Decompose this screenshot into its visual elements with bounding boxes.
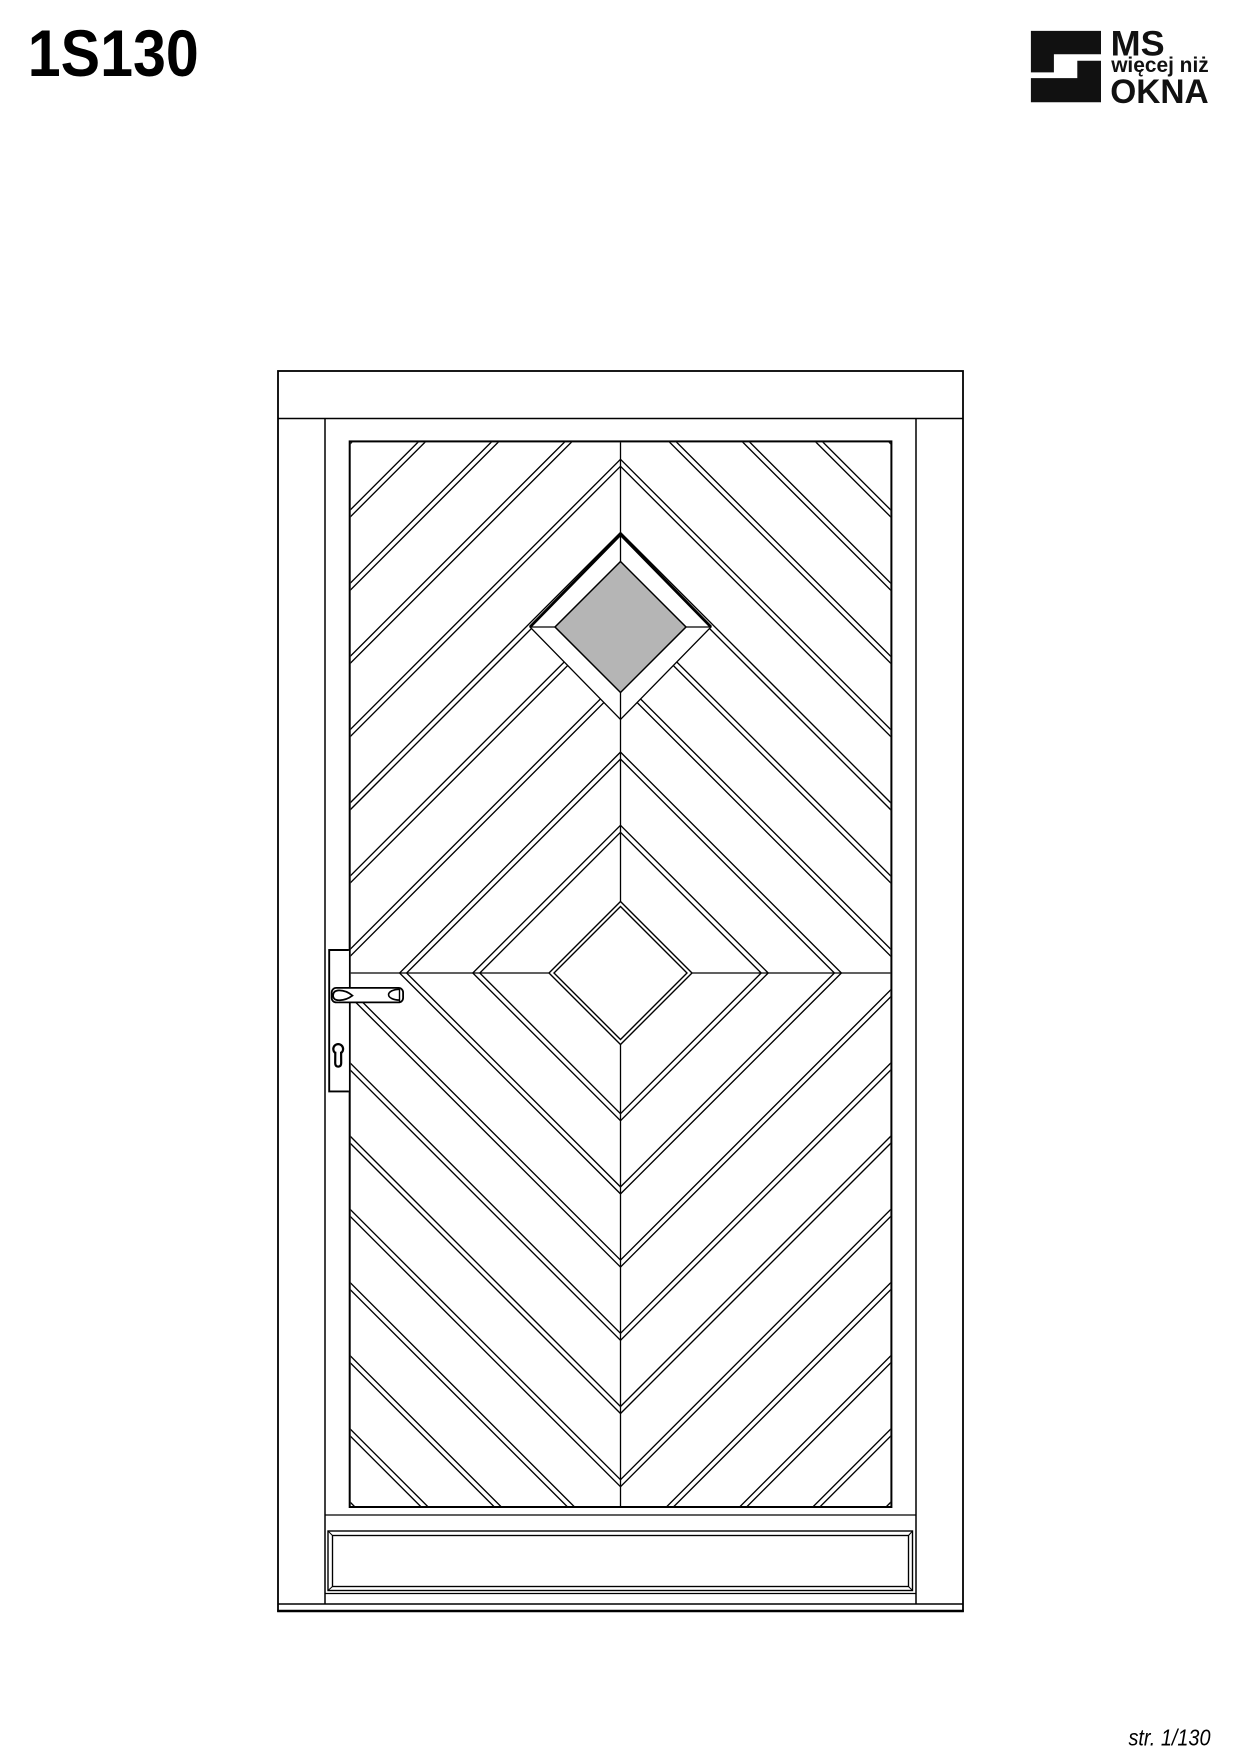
- svg-text:1S130: 1S130: [28, 17, 199, 90]
- svg-text:str. 1/130: str. 1/130: [1129, 1725, 1211, 1751]
- svg-text:OKNA: OKNA: [1110, 73, 1209, 111]
